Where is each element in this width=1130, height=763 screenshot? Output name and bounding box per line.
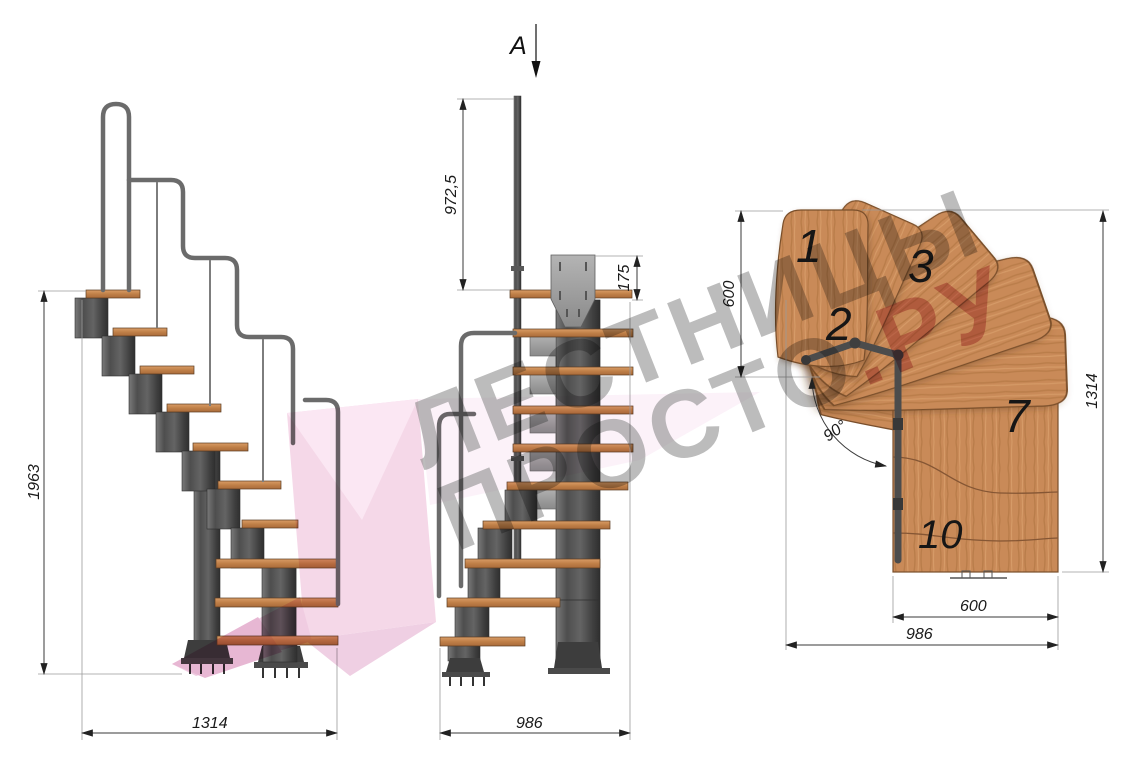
dim-front-width: 986 [516,715,543,732]
dim-plan-total-width: 986 [906,626,933,643]
dim-plan-flight-width: 600 [960,598,987,615]
handrail-loop [103,104,129,290]
technical-drawing: 1963 1314 A [0,0,1130,763]
dim-front-bracket: 175 [616,265,633,292]
anchor-bolts [263,668,299,678]
rail-joint [893,498,903,510]
dim-front-post-height: 972,5 [443,175,460,215]
dim-side-height: 1963 [26,464,43,500]
dim-plan-total-length: 1314 [1084,373,1101,409]
staircase-drawing-canvas: 1963 1314 A [0,0,1130,763]
column-foot-plate [254,662,308,668]
rail-joint [893,418,903,430]
column-base-flare [554,642,602,668]
column-foot-plate [548,668,610,674]
tread-number-7: 7 [1004,390,1031,442]
post-collar [511,266,524,271]
section-label: A [508,32,527,60]
dim-side-length: 1314 [192,715,228,732]
tread-number-10: 10 [918,513,963,557]
section-arrow-head [532,61,541,78]
